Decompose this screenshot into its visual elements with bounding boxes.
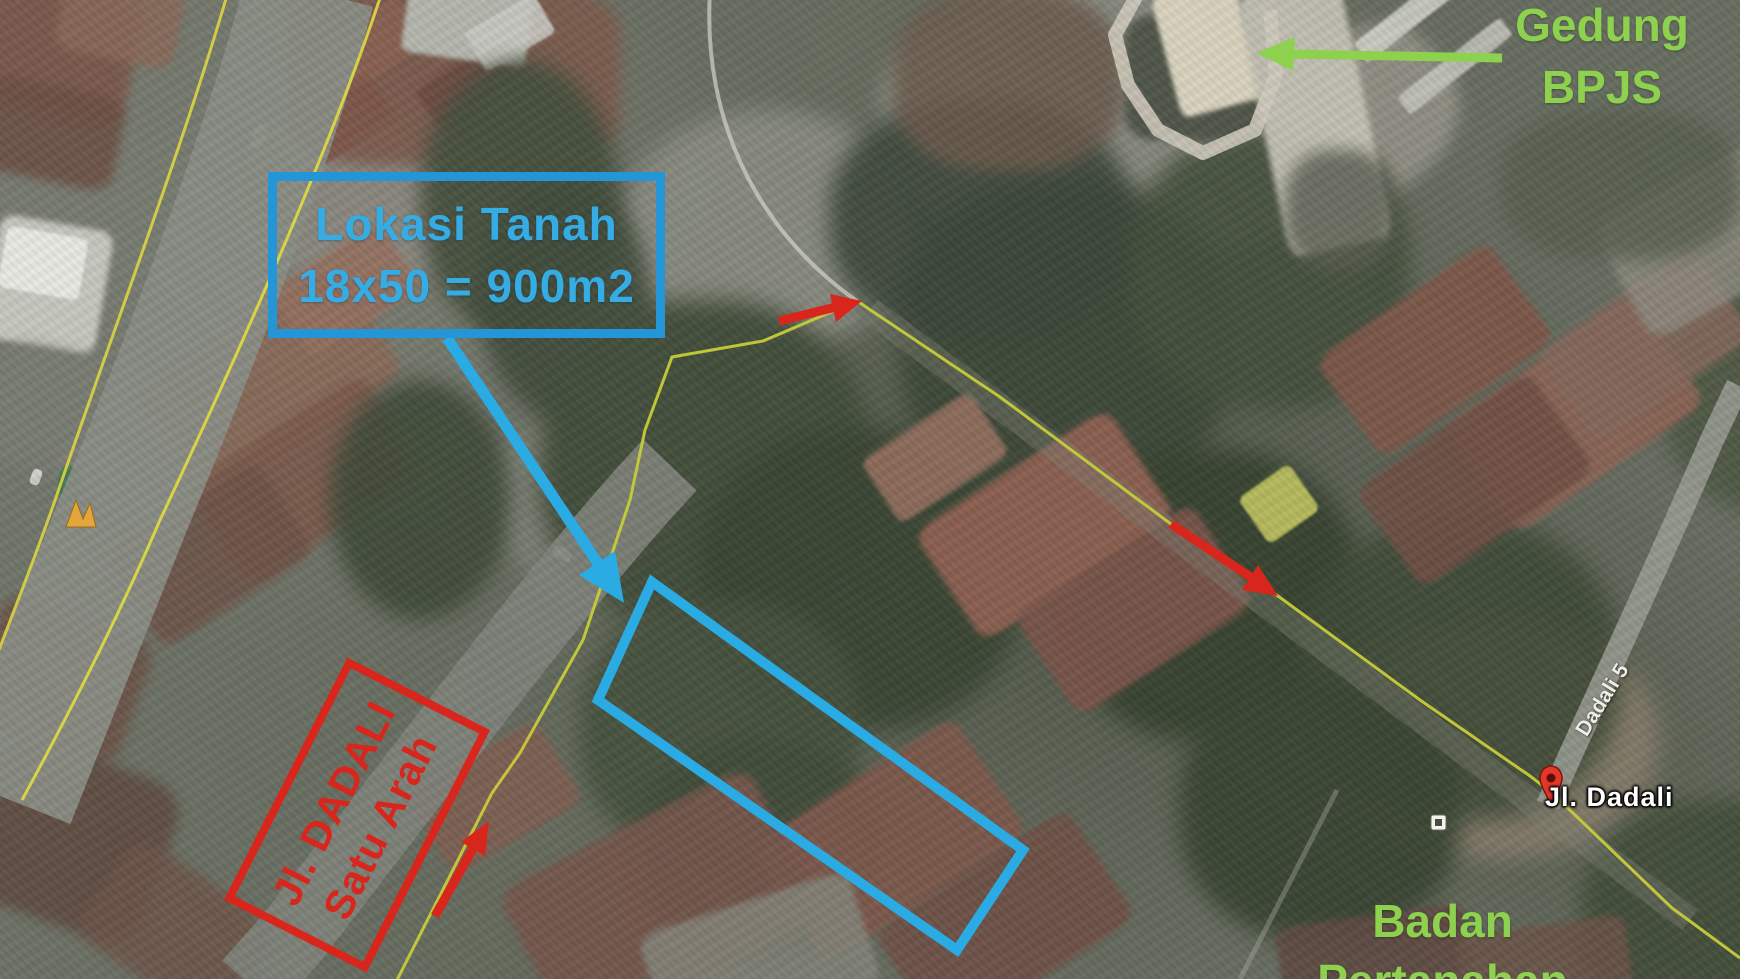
green-building-arrow-head-icon xyxy=(1256,37,1295,71)
parcel-outline xyxy=(598,582,1023,950)
photo-marker-icon xyxy=(1431,815,1446,830)
parcel-arrow-line xyxy=(447,338,601,568)
parcel-label-line2: 18x50 = 900m2 xyxy=(298,255,635,317)
badan-pertanahan-label: Badan Pertanahan xyxy=(1300,891,1585,979)
gedung-bpjs-line1: Gedung xyxy=(1478,0,1726,56)
badan-pertanahan-line1: Badan xyxy=(1300,891,1585,951)
jl-dadali-pin-label: Jl. Dadali xyxy=(1545,782,1674,813)
parcel-label-line1: Lokasi Tanah xyxy=(315,193,618,255)
gedung-bpjs-label: Gedung BPJS xyxy=(1478,0,1726,118)
gedung-bpjs-line2: BPJS xyxy=(1478,56,1726,118)
badan-pertanahan-line2: Pertanahan xyxy=(1300,951,1585,979)
parcel-arrow-head-icon xyxy=(579,551,624,603)
orange-roadside-marker-icon xyxy=(66,500,96,527)
red-direction-arrow-3-line xyxy=(435,845,475,916)
parcel-label-box: Lokasi Tanah 18x50 = 900m2 xyxy=(268,172,665,338)
red-direction-arrow-1-line xyxy=(779,307,836,321)
satellite-map: Lokasi Tanah 18x50 = 900m2 Jl. DADALI Sa… xyxy=(0,0,1740,979)
green-building-arrow-line xyxy=(1290,54,1502,58)
red-direction-arrow-1-head-icon xyxy=(830,294,862,322)
red-direction-arrow-2-line xyxy=(1171,524,1252,578)
